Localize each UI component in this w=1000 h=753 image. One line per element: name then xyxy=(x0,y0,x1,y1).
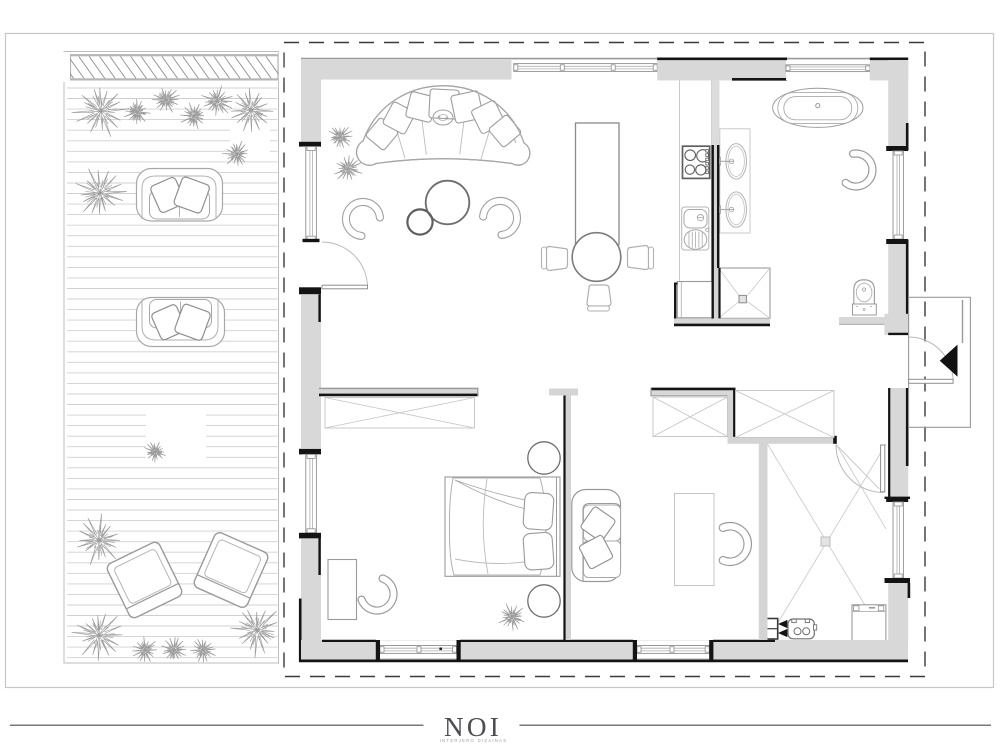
svg-text:INTERJERO DIZAINAS: INTERJERO DIZAINAS xyxy=(440,738,508,743)
